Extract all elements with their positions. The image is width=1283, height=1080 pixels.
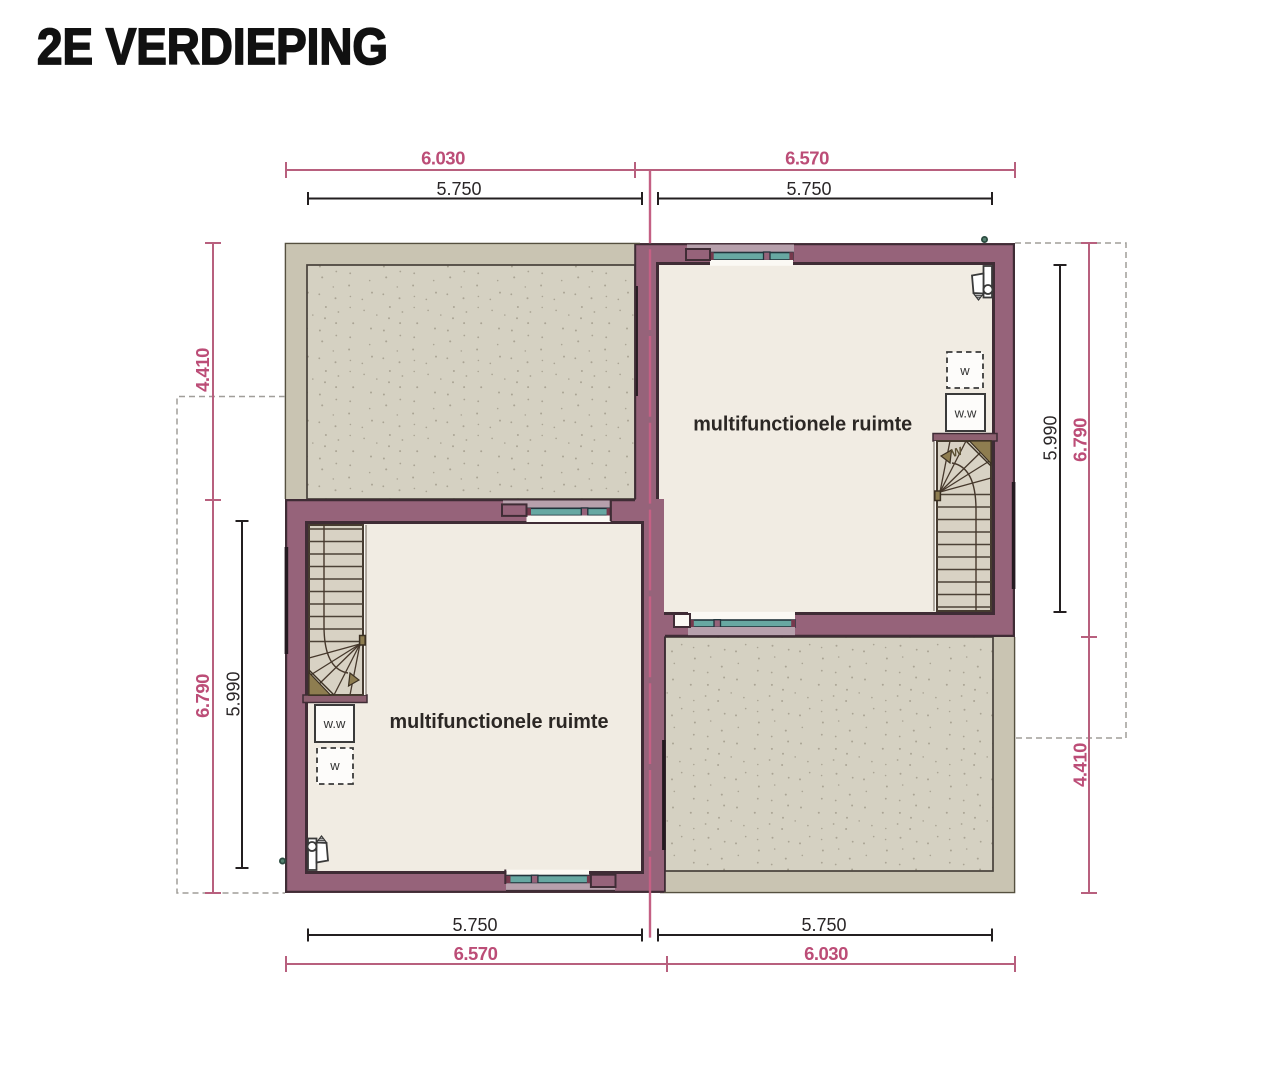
- svg-text:5.990: 5.990: [224, 671, 244, 716]
- svg-text:multifunctionele ruimte: multifunctionele ruimte: [390, 710, 609, 733]
- svg-text:6.030: 6.030: [804, 943, 848, 964]
- svg-text:w: w: [959, 363, 970, 378]
- svg-text:6.570: 6.570: [454, 943, 498, 964]
- svg-text:6.570: 6.570: [785, 148, 829, 169]
- svg-text:w.w: w.w: [954, 406, 977, 421]
- svg-text:w: w: [329, 758, 340, 773]
- svg-text:6.790: 6.790: [1070, 418, 1091, 462]
- svg-text:5.990: 5.990: [1041, 415, 1061, 460]
- svg-text:5.750: 5.750: [452, 915, 497, 935]
- svg-text:4.410: 4.410: [1070, 743, 1091, 787]
- svg-text:5.750: 5.750: [436, 179, 481, 199]
- svg-text:4.410: 4.410: [192, 348, 213, 392]
- svg-text:2E VERDIEPING: 2E VERDIEPING: [37, 18, 388, 75]
- svg-text:6.030: 6.030: [421, 148, 465, 169]
- svg-text:5.750: 5.750: [801, 915, 846, 935]
- svg-text:w.w: w.w: [323, 716, 346, 731]
- svg-text:6.790: 6.790: [192, 674, 213, 718]
- svg-text:multifunctionele ruimte: multifunctionele ruimte: [693, 413, 912, 436]
- svg-text:5.750: 5.750: [786, 179, 831, 199]
